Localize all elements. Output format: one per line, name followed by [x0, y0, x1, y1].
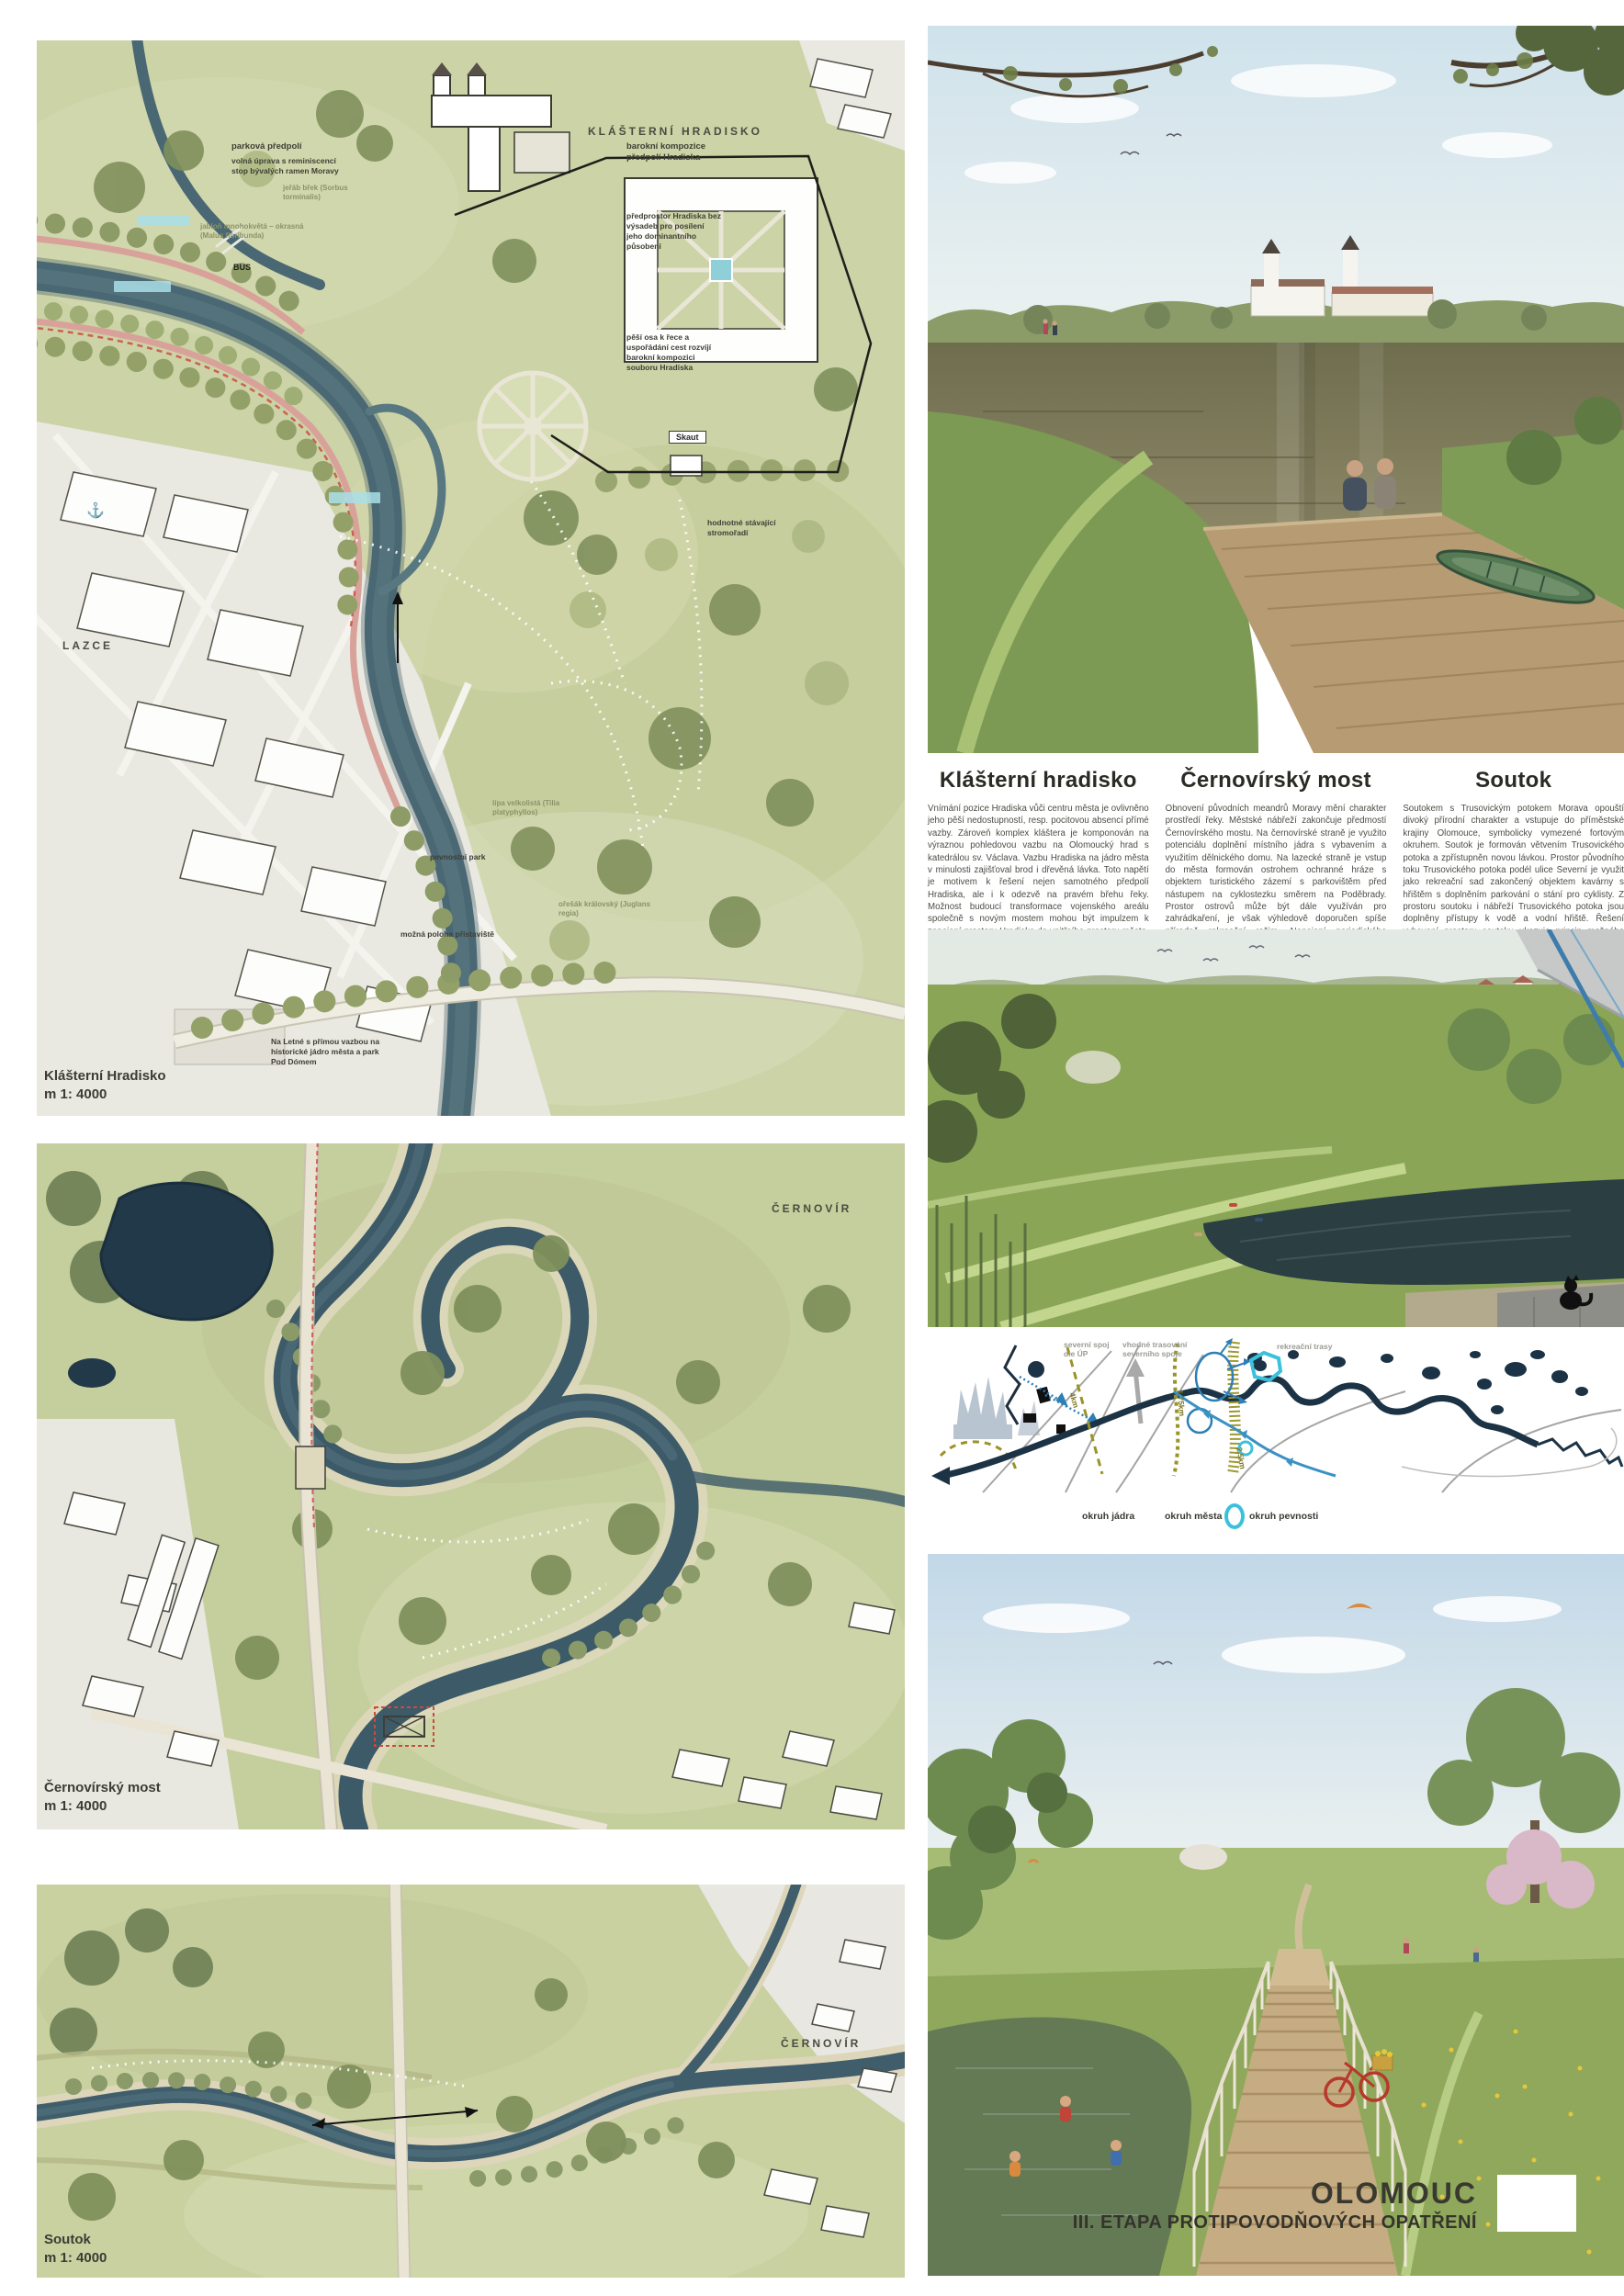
stream — [928, 2018, 1191, 2277]
plan-soutok-art — [37, 1885, 905, 2278]
map-annotation: barokní kompozice předpolí Hradiska — [626, 141, 740, 164]
bridge-cernovirsky — [296, 1446, 325, 1489]
map-annotation: pevnostní park — [430, 852, 513, 862]
tree-species-label: jeřáb břek (Sorbus torminalis) — [283, 184, 378, 203]
skaut-building-label: Skaut — [669, 431, 706, 444]
info-chip — [138, 215, 189, 226]
pond-small — [68, 1358, 116, 1388]
map-caption-scale: m 1: 4000 — [44, 1797, 161, 1816]
competition-poster: KLÁŠTERNÍ HRADISKO LAZCE parková předpol… — [0, 0, 1624, 2296]
article-heading: Černovírský most — [1166, 768, 1387, 793]
map-annotation: volná úprava s reminiscencí stop bývalýc… — [231, 156, 353, 176]
render-boardwalk: OLOMOUC III. ETAPA PROTIPOVODŇOVÝCH OPAT… — [928, 1554, 1624, 2276]
article-cernovirsky-most: Černovírský most Obnovení původních mean… — [1166, 768, 1387, 922]
city-rings-diagram: severní spoj dle ÚP vhodné trasování sev… — [928, 1336, 1624, 1548]
info-chip — [114, 281, 171, 292]
white-shrub — [1179, 1844, 1227, 1870]
distance-175km: 1,75km — [1176, 1390, 1187, 1416]
map-annotation: pěší osa k řece a uspořádání cest rozvíj… — [626, 332, 726, 373]
articles-section: Klášterní hradisko Vnímání pozice Hradis… — [928, 768, 1624, 922]
render-confluence — [928, 929, 1624, 1327]
legend-okruh-mesta: okruh města — [1165, 1511, 1222, 1522]
plan-soutok: ČERNOVÍR Soutok m 1: 4000 — [37, 1885, 905, 2278]
tree-species-label: lípa velkolistá (Tilia platyphyllos) — [492, 799, 588, 818]
legend-okruh-pevnosti: okruh pevnosti — [1249, 1511, 1318, 1522]
plan-klasterni-hradisko: KLÁŠTERNÍ HRADISKO LAZCE parková předpol… — [37, 40, 905, 1116]
plan-hradisko-art — [37, 40, 905, 1116]
render-riverfront-art — [928, 26, 1624, 753]
map-caption: Černovírský most m 1: 4000 — [44, 1779, 161, 1815]
district-label-lazce: LAZCE — [62, 639, 113, 652]
article-klasterni-hradisko: Klášterní hradisko Vnímání pozice Hradis… — [928, 768, 1149, 922]
map-caption: Soutok m 1: 4000 — [44, 2231, 107, 2267]
district-label-hradisko: KLÁŠTERNÍ HRADISKO — [588, 125, 762, 138]
plan-cernovirsky-most: ČERNOVÍR Černovírský most m 1: 4000 — [37, 1143, 905, 1829]
tree-species-label: jabloň mnohokvětá – okrasná (Malus flori… — [200, 222, 310, 242]
district-label-cernovir: ČERNOVÍR — [781, 2037, 861, 2050]
render-confluence-art — [928, 929, 1624, 1327]
diagram-label-severni-spoj: severní spoj dle ÚP — [1064, 1340, 1122, 1358]
tree-species-label: ořešák královský (Juglans regia) — [558, 900, 654, 919]
map-caption-scale: m 1: 4000 — [44, 1086, 166, 1104]
map-caption-title: Černovírský most — [44, 1779, 161, 1797]
map-caption-title: Soutok — [44, 2231, 107, 2249]
map-annotation: hodnotné stávající stromořadí — [707, 518, 803, 538]
diagram-label-rekreacni: rekreační trasy — [1277, 1342, 1333, 1351]
white-shrub — [1066, 1051, 1121, 1084]
map-caption: Klášterní Hradisko m 1: 4000 — [44, 1067, 166, 1103]
district-label-cernovir: ČERNOVÍR — [772, 1202, 851, 1215]
map-caption-title: Klášterní Hradisko — [44, 1067, 166, 1086]
article-soutok: Soutok Soutokem s Trusovickým potokem Mo… — [1403, 768, 1624, 922]
poster-title-city: OLOMOUC — [1056, 2178, 1477, 2210]
diagram-label-trasovani: vhodné trasování severního spoje — [1122, 1340, 1194, 1358]
info-chip — [329, 492, 380, 503]
poster-title-subtitle: III. ETAPA PROTIPOVODŇOVÝCH OPATŘENÍ — [1056, 2212, 1477, 2234]
article-heading: Soutok — [1403, 768, 1624, 793]
render-boardwalk-art — [928, 1554, 1624, 2276]
map-annotation: Na Letné s přímou vazbou na historické j… — [271, 1037, 390, 1067]
logo-placeholder — [1497, 2175, 1576, 2232]
anchor-icon: ⚓ — [86, 501, 105, 520]
legend-okruh-jadra: okruh jádra — [1082, 1511, 1134, 1522]
article-heading: Klášterní hradisko — [928, 768, 1149, 793]
formal-garden — [479, 373, 586, 479]
map-annotation: parková předpolí — [231, 141, 340, 152]
bus-stop-label: BUS — [233, 263, 251, 272]
map-caption-scale: m 1: 4000 — [44, 2249, 107, 2268]
plan-cernovir-art — [37, 1143, 905, 1829]
render-riverfront — [928, 26, 1624, 753]
map-annotation: předprostor Hradiska bez výsadeb pro pos… — [626, 211, 722, 252]
poster-title-block: OLOMOUC III. ETAPA PROTIPOVODŇOVÝCH OPAT… — [1056, 2178, 1477, 2234]
pond — [101, 1183, 272, 1320]
map-annotation: možná poloha přístaviště — [400, 929, 511, 940]
